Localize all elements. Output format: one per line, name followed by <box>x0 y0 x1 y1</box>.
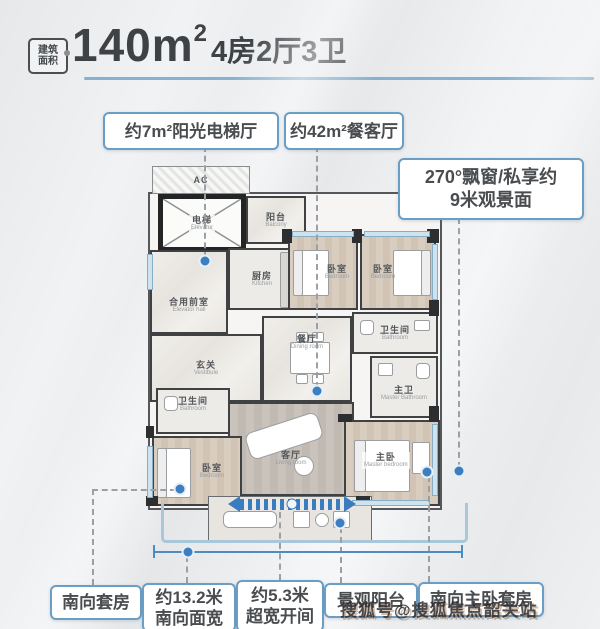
dimension-line <box>153 551 463 553</box>
toilet <box>416 363 430 379</box>
callout-dining-living: 约42m²餐客厅 <box>284 112 404 150</box>
callout-text: 南向套房 <box>62 592 130 613</box>
callout-text-line2: 超宽开间 <box>246 606 314 627</box>
arrow-left-icon <box>228 496 240 512</box>
room-elevator-hall: 合用前室 Elevator hall <box>150 250 228 334</box>
room-bedroom-a: 卧室 Bedroom <box>288 234 358 310</box>
room-label-en: Dining room <box>291 344 323 351</box>
leader-dot <box>174 483 187 496</box>
leader-south-width <box>186 556 188 583</box>
window-strip <box>364 231 430 237</box>
title-spec: 4房2厅3卫 <box>211 36 346 68</box>
leader-south-suite <box>92 489 94 585</box>
room-bathroom-right: 卫生间 Bathroom <box>352 312 438 354</box>
room-label-en: Bathroom <box>380 335 410 342</box>
room-bathroom-left: 卫生间 Bathroom <box>156 388 230 434</box>
leader-view-balcony <box>340 527 342 583</box>
watermark: 搜狐号@搜狐焦点韶关站 <box>340 596 538 621</box>
room-ac-platform: AC <box>152 166 250 194</box>
room-label-zh: 卧室 <box>371 264 395 274</box>
room-bedroom-b: 卧室 Bedroom <box>360 234 436 310</box>
room-master-bedroom: 主卧 Master bedroom <box>344 420 440 506</box>
bed-pillow <box>421 250 431 296</box>
leader-bay-window <box>458 218 460 468</box>
room-label-zh: 电梯 <box>191 215 213 225</box>
dimension-tick <box>153 545 155 558</box>
room-label-en: Bedroom <box>325 274 349 281</box>
room-label-zh: 卫生间 <box>380 325 410 335</box>
wall-segment <box>429 300 439 316</box>
arrow-right-icon <box>344 496 356 512</box>
title-area: 140m <box>72 19 194 71</box>
dimension-tick <box>461 545 463 558</box>
room-label-en: Master Bathroom <box>381 395 427 402</box>
room-label-en: Bedroom <box>371 274 395 281</box>
bed-pillow <box>293 250 303 296</box>
room-label-en: Balcony <box>265 222 286 229</box>
room-label-zh: 卧室 <box>325 264 349 274</box>
callout-text-line1: 约13.2米 <box>155 587 222 608</box>
room-label-zh: 阳台 <box>265 212 286 222</box>
wall-segment <box>429 406 439 422</box>
leader-dot <box>421 466 434 479</box>
room-label-en: Elevator hall <box>169 307 209 314</box>
toilet <box>164 396 178 411</box>
room-label-zh: 主卫 <box>381 385 427 395</box>
leader-dot <box>182 546 195 559</box>
wall-segment <box>282 229 292 243</box>
building-area-badge: 建筑 面积 <box>28 38 68 74</box>
dining-chair <box>296 374 308 384</box>
room-label-zh: 卧室 <box>200 463 224 473</box>
sink <box>378 363 393 376</box>
leader-master-suite <box>428 476 430 582</box>
leader-dining-living <box>316 146 318 388</box>
leader-wide-opening <box>279 512 281 580</box>
badge-line1: 建筑 <box>38 45 58 56</box>
window-strip <box>292 231 354 237</box>
badge-dot <box>64 50 70 56</box>
room-kitchen: 厨房 Kitchen <box>228 248 296 310</box>
floor-plan-page: 建筑 面积 140m24房2厅3卫 AC 电梯 Elevator 阳台 Balc… <box>0 0 600 629</box>
callout-text-line1: 270°飘窗/私享约 <box>425 166 557 189</box>
room-elevator: 电梯 Elevator <box>158 194 246 252</box>
room-label-en: Bathroom <box>178 406 208 413</box>
leader-dot <box>334 517 347 530</box>
badge-line2: 面积 <box>38 56 58 67</box>
room-dining: 餐厅 Dining room <box>262 316 352 402</box>
room-label-zh: 合用前室 <box>169 297 209 307</box>
callout-text-line1: 约5.3米 <box>251 585 309 606</box>
room-living: 客厅 Living room <box>228 402 354 496</box>
toilet <box>360 320 374 335</box>
title-area-sup: 2 <box>194 20 207 47</box>
room-label-zh: 主卧 <box>364 452 408 462</box>
room-label-zh: 玄关 <box>194 360 218 370</box>
room-label-en: Living room <box>275 460 306 467</box>
room-label-zh: 厨房 <box>252 271 272 281</box>
leader-dot <box>453 465 466 478</box>
title-underline <box>84 77 594 80</box>
wall-segment <box>146 426 154 438</box>
callout-wide-opening: 约5.3米 超宽开间 <box>236 580 324 629</box>
leader-dot <box>311 385 324 398</box>
sink <box>414 320 430 331</box>
dining-chair <box>312 374 324 384</box>
window-strip <box>432 244 438 300</box>
room-label-en: Elevator <box>191 225 213 232</box>
room-label-zh: 卫生间 <box>178 396 208 406</box>
wall-segment <box>338 414 352 422</box>
page-title: 140m24房2厅3卫 <box>72 18 346 72</box>
room-master-bath: 主卫 Master Bathroom <box>370 356 438 418</box>
leader-south-suite-h <box>92 489 176 491</box>
room-label-zh: AC <box>194 175 209 185</box>
callout-text: 约7m²阳光电梯厅 <box>125 121 257 142</box>
room-label-en: Vestibule <box>194 370 218 377</box>
callout-south-width: 约13.2米 南向面宽 <box>142 583 236 629</box>
window-strip <box>432 424 438 496</box>
window-strip <box>147 254 153 290</box>
leader-dot <box>199 255 212 268</box>
arrow-center-dot <box>287 499 298 510</box>
room-label-en: Kitchen <box>252 281 272 288</box>
callout-text-line2: 9米观景面 <box>450 189 532 212</box>
callout-text: 约42m²餐客厅 <box>290 121 398 142</box>
callout-south-suite: 南向套房 <box>50 585 142 620</box>
room-label-en: Master bedroom <box>364 462 408 469</box>
leader-elevator-hall <box>204 146 206 258</box>
room-label-zh: 客厅 <box>275 450 306 460</box>
room-label-en: Bedroom <box>200 473 224 480</box>
room-label-zh: 餐厅 <box>291 334 323 344</box>
callout-text-line2: 南向面宽 <box>155 608 223 629</box>
callout-sunlit-elevator-hall: 约7m²阳光电梯厅 <box>103 112 279 150</box>
callout-bay-window: 270°飘窗/私享约 9米观景面 <box>398 158 584 220</box>
